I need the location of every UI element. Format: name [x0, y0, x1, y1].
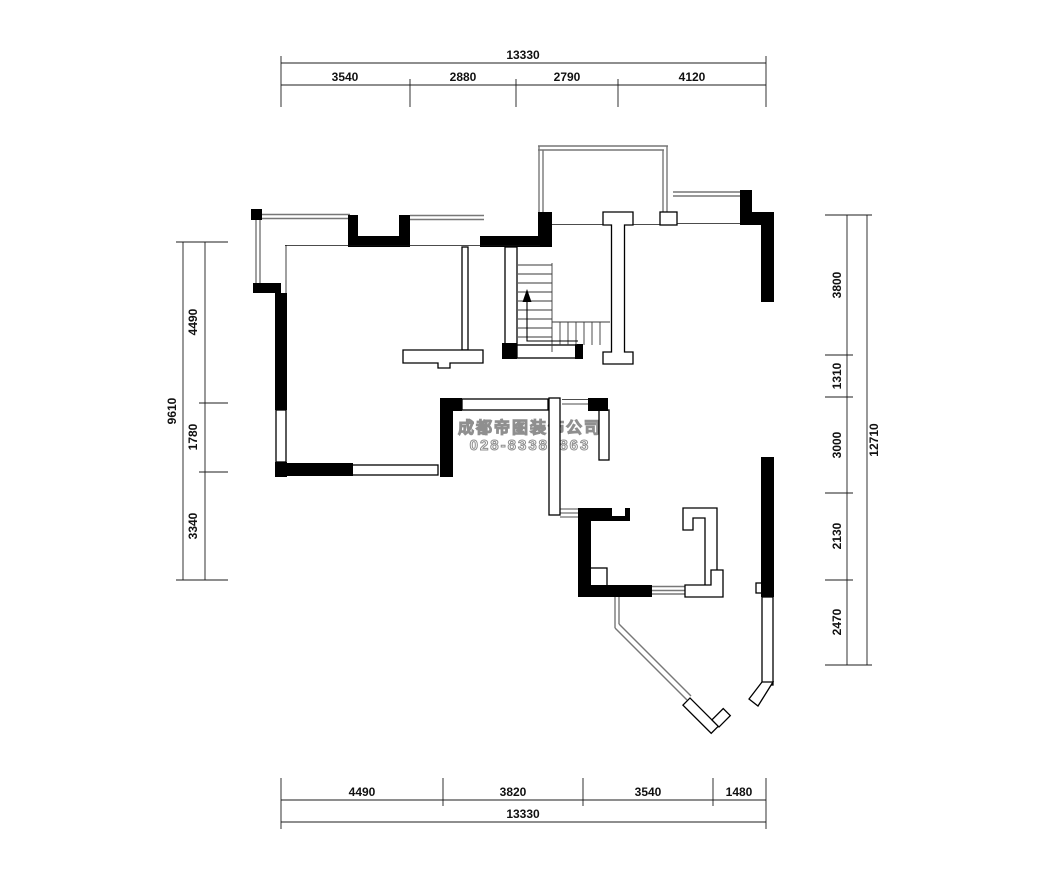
balcony-rail-end-wall [683, 687, 730, 734]
dim-bottom-segment-1: 3820 [500, 785, 527, 799]
hall-wall-horizontal [462, 399, 548, 410]
right-angled-wall-end [749, 682, 773, 706]
dim-top-segment-2: 2790 [554, 70, 581, 84]
dim-right-segment-4: 2470 [830, 608, 844, 635]
bottom-left-window [352, 465, 438, 475]
floor-plan-canvas: 成都帝图装饰公司 028-83385863 [0, 0, 1046, 871]
bathroom-door-notch [612, 508, 625, 516]
dim-bottom-total: 13330 [506, 807, 540, 821]
hall-wall-vertical [549, 398, 560, 515]
watermark-phone: 028-83385863 [470, 437, 591, 454]
dim-bottom-segment-0: 4490 [349, 785, 376, 799]
dim-right-segment-0: 3800 [830, 271, 844, 298]
mid-room-bottom-wall [403, 350, 483, 368]
dim-bottom: 4490 3820 3540 1480 13330 [281, 778, 766, 829]
bathroom-fixture [590, 568, 607, 586]
dim-right-segment-2: 3000 [830, 431, 844, 458]
corridor-wall [599, 410, 609, 460]
dim-left-segment-2: 3340 [186, 512, 200, 539]
dim-bottom-segment-3: 1480 [726, 785, 753, 799]
watermark: 成都帝图装饰公司 028-83385863 [458, 418, 602, 454]
bathroom-bottom-right-wall [685, 570, 723, 597]
dim-top-segment-3: 4120 [679, 70, 706, 84]
dim-top-segment-1: 2880 [450, 70, 477, 84]
dim-bottom-segment-2: 3540 [635, 785, 662, 799]
left-wall-window [276, 410, 286, 462]
dim-left-segment-0: 4490 [186, 308, 200, 335]
dim-left-total: 9610 [165, 397, 179, 424]
dim-left: 4490 1780 3340 9610 [165, 242, 228, 580]
dim-right-segment-3: 2130 [830, 522, 844, 549]
floor-plan-page: 成都帝图装饰公司 028-83385863 [0, 0, 1046, 871]
right-window-lower [762, 597, 773, 685]
dim-left-segment-1: 1780 [186, 423, 200, 450]
watermark-company: 成都帝图装饰公司 [458, 418, 602, 437]
dim-right: 3800 1310 3000 2130 2470 12710 [825, 215, 881, 665]
stair-left-wall [505, 247, 517, 345]
dim-right-total: 12710 [867, 423, 881, 457]
dim-top-total: 13330 [506, 48, 540, 62]
bedroom-divider-wall [462, 247, 468, 350]
dim-right-segment-1: 1310 [830, 362, 844, 389]
stair-bottom-wall [517, 345, 579, 358]
stairs-up-arrow-icon [523, 289, 579, 341]
i-column-wall [603, 212, 633, 364]
dim-top: 13330 3540 2880 2790 4120 [281, 48, 766, 107]
dim-top-segment-0: 3540 [332, 70, 359, 84]
window-pier [660, 212, 677, 225]
stairs [518, 263, 610, 352]
